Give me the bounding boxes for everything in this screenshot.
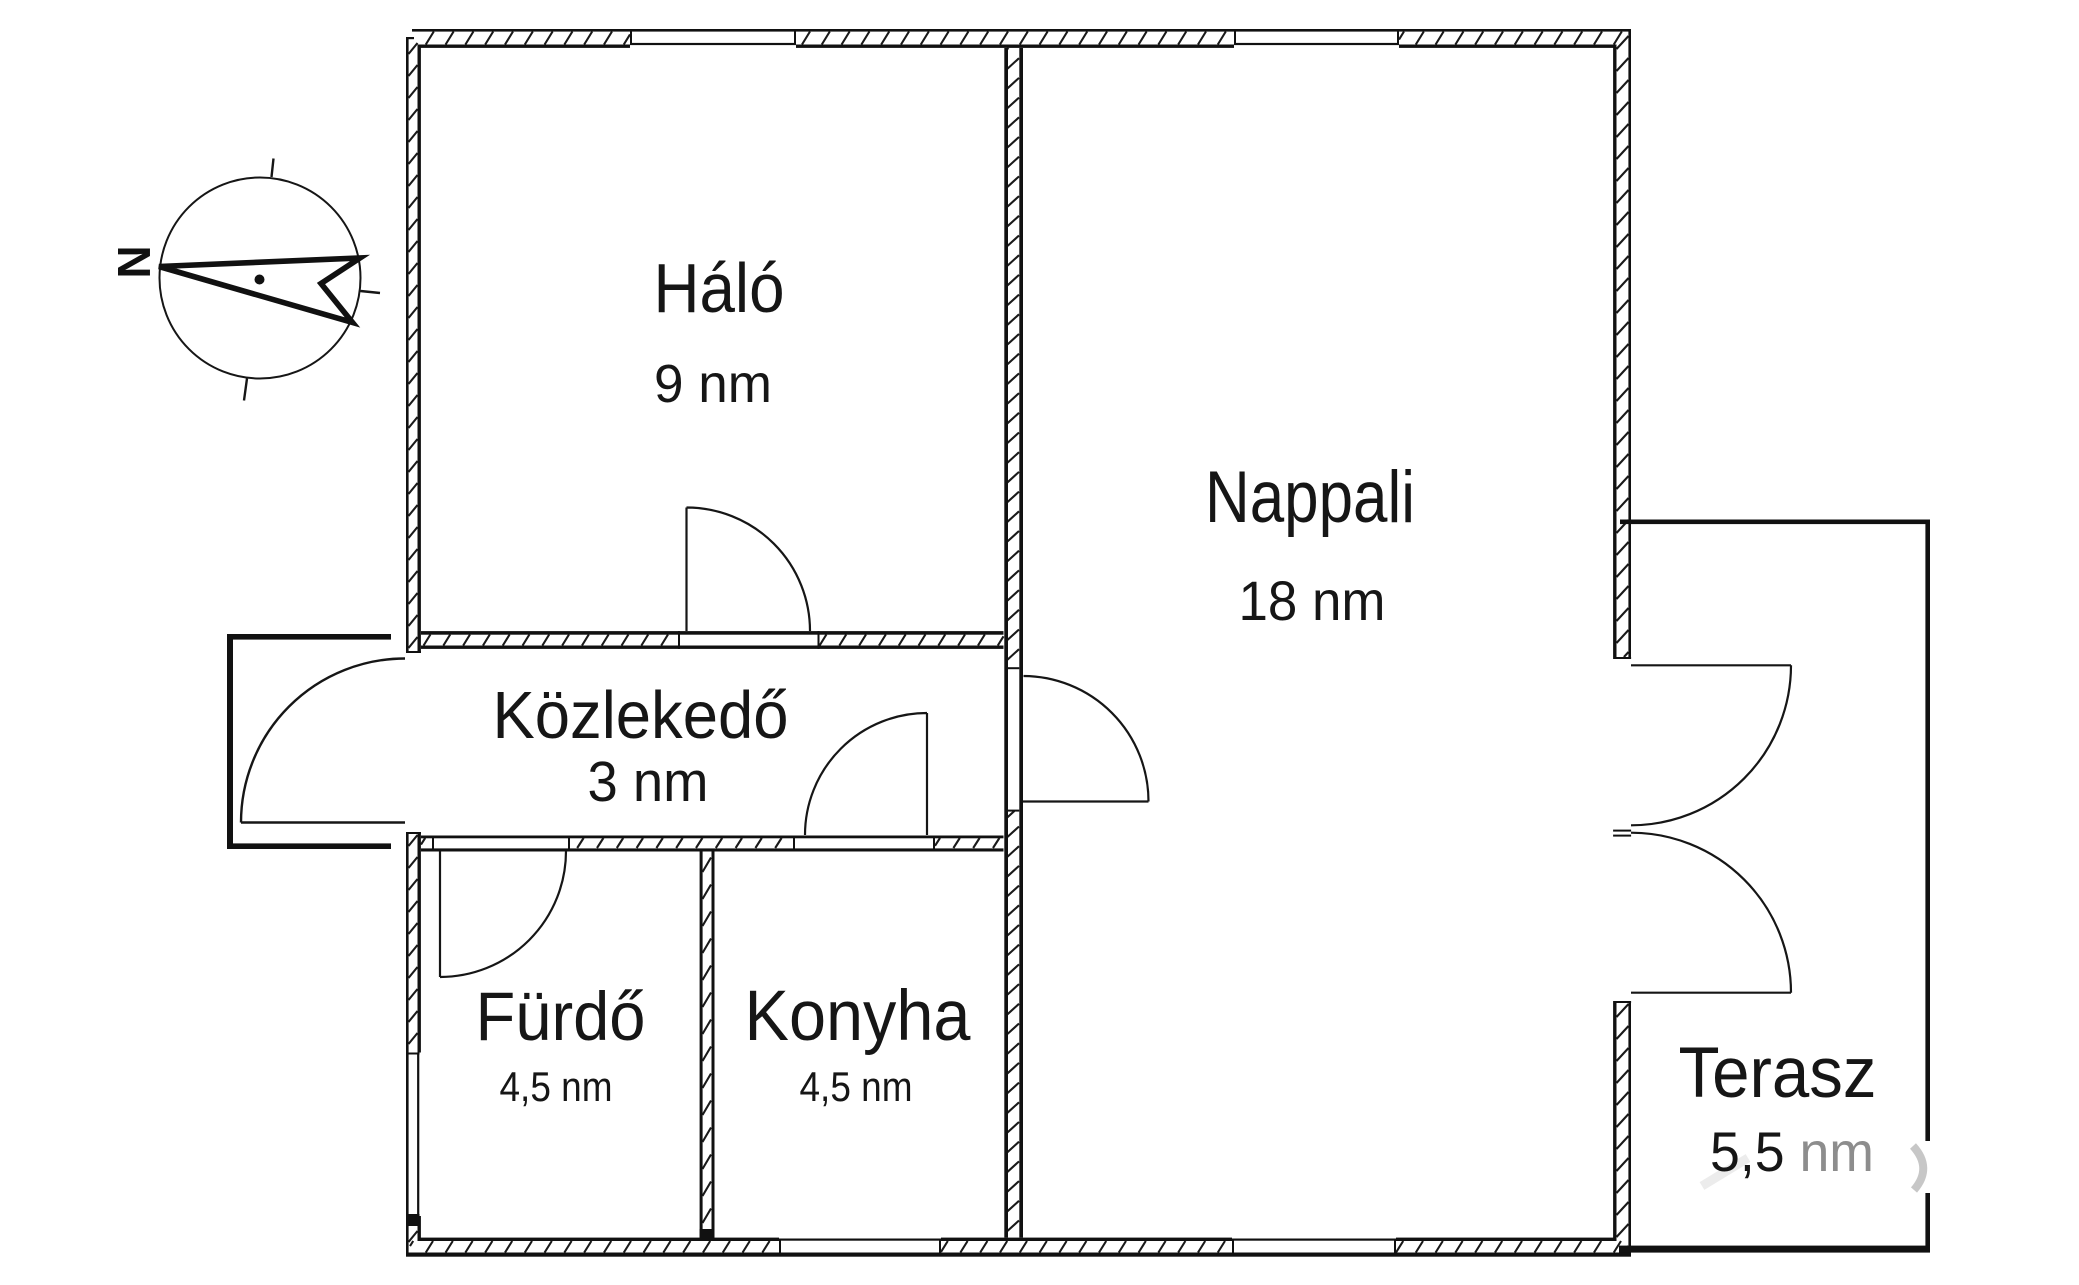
- svg-text:Terasz: Terasz: [1679, 1034, 1877, 1113]
- svg-text:4,5 nm: 4,5 nm: [800, 1063, 913, 1110]
- svg-text:N: N: [108, 245, 160, 278]
- svg-text:9 nm: 9 nm: [654, 354, 772, 414]
- svg-text:18 nm: 18 nm: [1239, 570, 1386, 632]
- svg-text:3 nm: 3 nm: [588, 750, 709, 814]
- svg-text:4,5 nm: 4,5 nm: [500, 1063, 613, 1110]
- svg-text:Fürdő: Fürdő: [476, 978, 646, 1055]
- svg-text:5,5 nm: 5,5 nm: [1710, 1120, 1874, 1183]
- svg-text:Közlekedő: Közlekedő: [493, 679, 789, 753]
- svg-text:Konyha: Konyha: [745, 977, 971, 1056]
- svg-text:Nappali: Nappali: [1205, 457, 1415, 538]
- svg-text:Háló: Háló: [654, 249, 785, 327]
